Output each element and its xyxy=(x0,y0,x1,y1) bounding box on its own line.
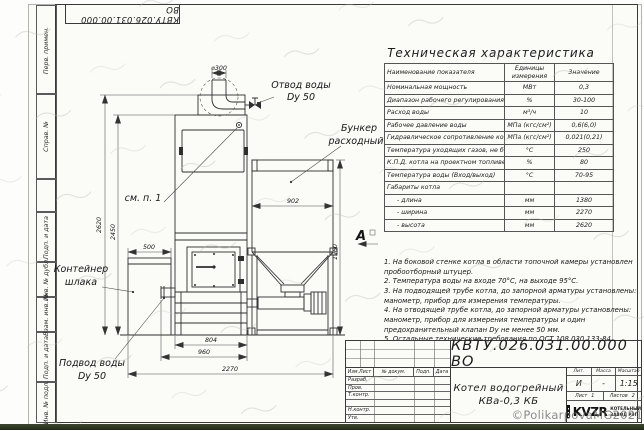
table-row: Температура уходящих газов, не более°С25… xyxy=(385,144,614,157)
label-bunker-2: расходный xyxy=(328,136,384,147)
header-izm-list: Изм.Лист xyxy=(346,368,374,377)
staff-tkontr: Т.контр. xyxy=(346,392,450,400)
label-see-note-1: см. п. 1 xyxy=(125,193,162,204)
sheets-total: Листов 2 xyxy=(604,392,641,401)
sheet-number: Лист 1 xyxy=(567,392,604,401)
table-row: Расход водым³/ч10 xyxy=(385,107,614,120)
callout-labels: Отвод воды Dy 50 Бункер расходный см. п.… xyxy=(54,80,384,382)
dim-804: 804 xyxy=(205,337,217,344)
label-water-inlet-1: Подвод воды xyxy=(59,358,126,369)
revision-header-row: Изм.Лист № докум. Подп. Дата xyxy=(346,368,450,377)
col-header-name: Наименование показателя xyxy=(385,64,505,82)
dimension-texts: ⌀300 2620 2450 500 902 1960 804 960 2270 xyxy=(96,65,339,373)
table-row: Габариты котла xyxy=(385,182,614,195)
note-item: 3. На подводящей трубе котла, до запорно… xyxy=(384,287,640,306)
table-row: - высотамм2620 xyxy=(385,219,614,232)
scale-value: 1:15 xyxy=(616,376,641,392)
header-data: Дата xyxy=(434,368,450,377)
mass-label: Масса xyxy=(592,368,617,376)
technical-notes: 1. На боковой стенке котла в области топ… xyxy=(384,258,640,345)
table-row: Температура воды (Вход/выход)°С70-95 xyxy=(385,169,614,182)
doc-title-line2: КВа-0,3 КБ xyxy=(479,396,539,407)
tech-table-title: Техническая характеристика xyxy=(384,46,598,60)
leader-lines xyxy=(102,97,341,359)
bottom-edge-bar xyxy=(0,424,644,430)
dim-2450: 2450 xyxy=(110,224,117,240)
slag-container xyxy=(128,258,171,335)
document-designation: КВТУ.026.031.00.000 ВО xyxy=(450,341,641,368)
lit-value: И xyxy=(567,376,592,392)
scale-label: Масштаб xyxy=(616,368,641,376)
table-row: Рабочее давление водыМПа (кгс/см²)0,6(6,… xyxy=(385,119,614,132)
dim-2270: 2270 xyxy=(222,366,238,373)
note-item: 2. Температура воды на входе 70°С, на вы… xyxy=(384,277,640,287)
dim-902: 902 xyxy=(287,198,299,205)
table-row: - длинамм1380 xyxy=(385,194,614,207)
note-item: 4. На отводящей трубе котла, до запорной… xyxy=(384,306,640,335)
label-water-outlet-1: Отвод воды xyxy=(271,80,331,91)
staff-prov: Пров. xyxy=(346,385,450,393)
note-item: 1. На боковой стенке котла в области топ… xyxy=(384,258,640,277)
dim-500: 500 xyxy=(143,244,155,251)
table-row: - ширинамм2270 xyxy=(385,207,614,220)
table-row: Номинальная мощностьМВт0,3 xyxy=(385,82,614,95)
author-watermark: ©PolikarpovaMG2021 xyxy=(512,408,643,422)
table-row: К.П.Д. котла на проектном топливе%80 xyxy=(385,157,614,170)
header-podp: Подп. xyxy=(414,368,434,377)
view-letter: А xyxy=(355,229,366,244)
label-water-inlet-2: Dy 50 xyxy=(78,371,106,382)
mass-value: - xyxy=(592,376,617,392)
col-header-value: Значение xyxy=(555,64,614,82)
drawing-sheet-view: Перв. примен. Справ. № Подп. и дата Инв.… xyxy=(0,0,644,430)
dim-2620: 2620 xyxy=(96,217,103,233)
doc-title-line1: Котел водогрейный xyxy=(453,383,563,394)
col-header-units: Единицы измерения xyxy=(505,64,555,82)
chimney-and-outlet xyxy=(198,78,261,128)
dim-d300: ⌀300 xyxy=(211,65,227,72)
tech-table: Наименование показателя Единицы измерени… xyxy=(384,63,614,232)
table-row: Диапазон рабочего регулирования%30-100 xyxy=(385,94,614,107)
fuel-bunker xyxy=(247,160,337,335)
dim-960: 960 xyxy=(198,349,210,356)
label-slag-container-2: шлака xyxy=(65,277,97,288)
lit-mass-scale-header: Лит. Масса Масштаб xyxy=(567,368,641,376)
staff-blank xyxy=(346,400,450,408)
table-row: Гидравлическое сопротивление котлаМПа (к… xyxy=(385,132,614,145)
dim-1960: 1960 xyxy=(332,244,339,260)
sheet-numbers-row: Лист 1 Листов 2 xyxy=(567,392,641,401)
label-bunker-1: Бункер xyxy=(341,123,377,134)
lit-mass-scale-values: И - 1:15 xyxy=(567,376,641,392)
staff-nkontr: Н.контр. xyxy=(346,407,450,415)
staff-rows: Разраб. Пров. Т.контр. Н.контр. Утв. xyxy=(346,377,450,422)
revision-grid xyxy=(346,341,450,368)
label-slag-container-1: Контейнер xyxy=(54,264,108,275)
lit-label: Лит. xyxy=(567,368,592,376)
header-no-dokum: № докум. xyxy=(374,368,414,377)
staff-utv: Утв. xyxy=(346,415,450,423)
label-water-outlet-2: Dy 50 xyxy=(287,92,315,103)
water-inlet-stub xyxy=(161,286,175,299)
staff-razrab: Разраб. xyxy=(346,377,450,385)
